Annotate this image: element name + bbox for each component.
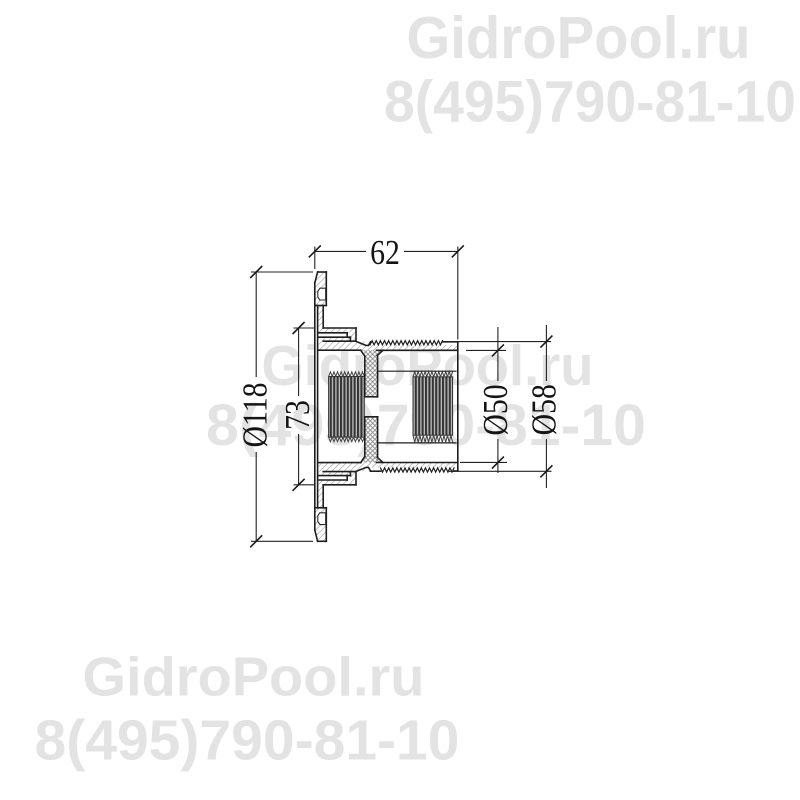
svg-text:Ø58: Ø58 <box>525 384 564 435</box>
svg-text:Ø50: Ø50 <box>477 384 516 435</box>
svg-text:73: 73 <box>279 400 318 430</box>
svg-text:8(495)790-81-10: 8(495)790-81-10 <box>384 70 796 135</box>
svg-text:GidroPool.ru: GidroPool.ru <box>407 5 751 71</box>
svg-text:8(495)790-81-10: 8(495)790-81-10 <box>35 709 460 773</box>
svg-text:Ø118: Ø118 <box>236 383 275 448</box>
svg-text:62: 62 <box>370 234 400 273</box>
svg-text:GidroPool.ru: GidroPool.ru <box>83 646 425 708</box>
